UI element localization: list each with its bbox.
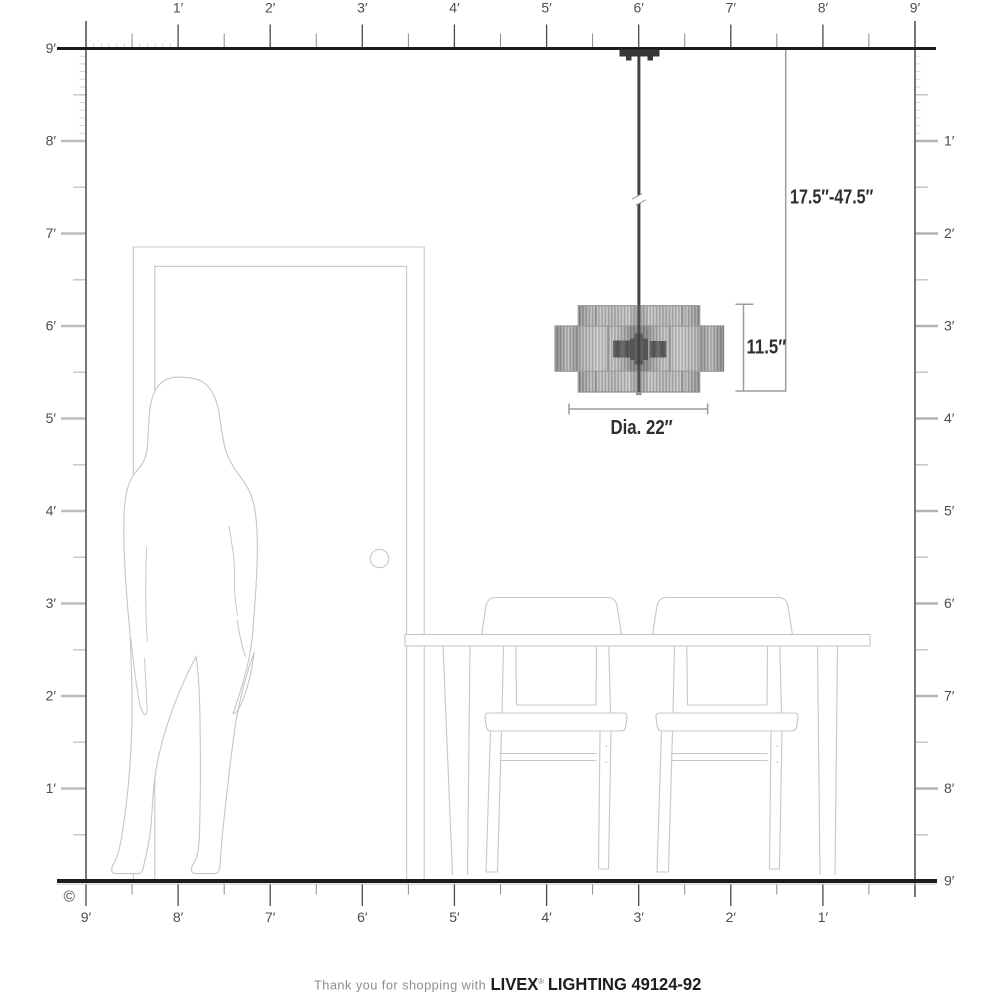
svg-text:6′: 6′ [357,909,368,925]
svg-text:5′: 5′ [46,410,57,426]
svg-text:7′: 7′ [944,688,955,704]
svg-text:3′: 3′ [357,0,368,16]
svg-text:Dia. 22″: Dia. 22″ [611,415,673,438]
svg-text:3′: 3′ [46,595,57,611]
svg-text:2′: 2′ [726,909,737,925]
svg-text:5′: 5′ [541,0,552,16]
svg-text:7′: 7′ [726,0,737,16]
svg-text:6′: 6′ [46,318,57,334]
svg-text:8′: 8′ [173,909,184,925]
svg-text:1′: 1′ [818,909,829,925]
svg-text:5′: 5′ [944,503,955,519]
svg-text:1′: 1′ [944,133,955,149]
svg-text:LIVEX®LIGHTING 49124-92: LIVEX®LIGHTING 49124-92 [491,973,702,994]
svg-text:5′: 5′ [449,909,460,925]
svg-text:11.5″: 11.5″ [747,335,787,358]
svg-text:4′: 4′ [449,0,460,16]
svg-text:4′: 4′ [46,503,57,519]
svg-text:3′: 3′ [944,318,955,334]
svg-text:1′: 1′ [46,780,57,796]
svg-text:8′: 8′ [944,780,955,796]
svg-text:7′: 7′ [46,225,57,241]
svg-text:2′: 2′ [944,225,955,241]
svg-text:4′: 4′ [944,410,955,426]
svg-text:7′: 7′ [265,909,276,925]
svg-text:8′: 8′ [46,133,57,149]
svg-text:3′: 3′ [633,909,644,925]
svg-text:9′: 9′ [944,873,955,889]
svg-text:2′: 2′ [46,688,57,704]
svg-text:Thank you for shopping with: Thank you for shopping with [314,978,486,993]
svg-text:4′: 4′ [541,909,552,925]
svg-text:1′: 1′ [173,0,184,16]
svg-text:8′: 8′ [818,0,829,16]
svg-text:17.5″-47.5″: 17.5″-47.5″ [790,185,873,208]
svg-text:9′: 9′ [46,40,57,56]
svg-text:©: © [64,889,76,906]
svg-text:9′: 9′ [81,909,92,925]
svg-text:6′: 6′ [633,0,644,16]
svg-text:2′: 2′ [265,0,276,16]
svg-text:6′: 6′ [944,595,955,611]
svg-text:9′: 9′ [910,0,921,16]
